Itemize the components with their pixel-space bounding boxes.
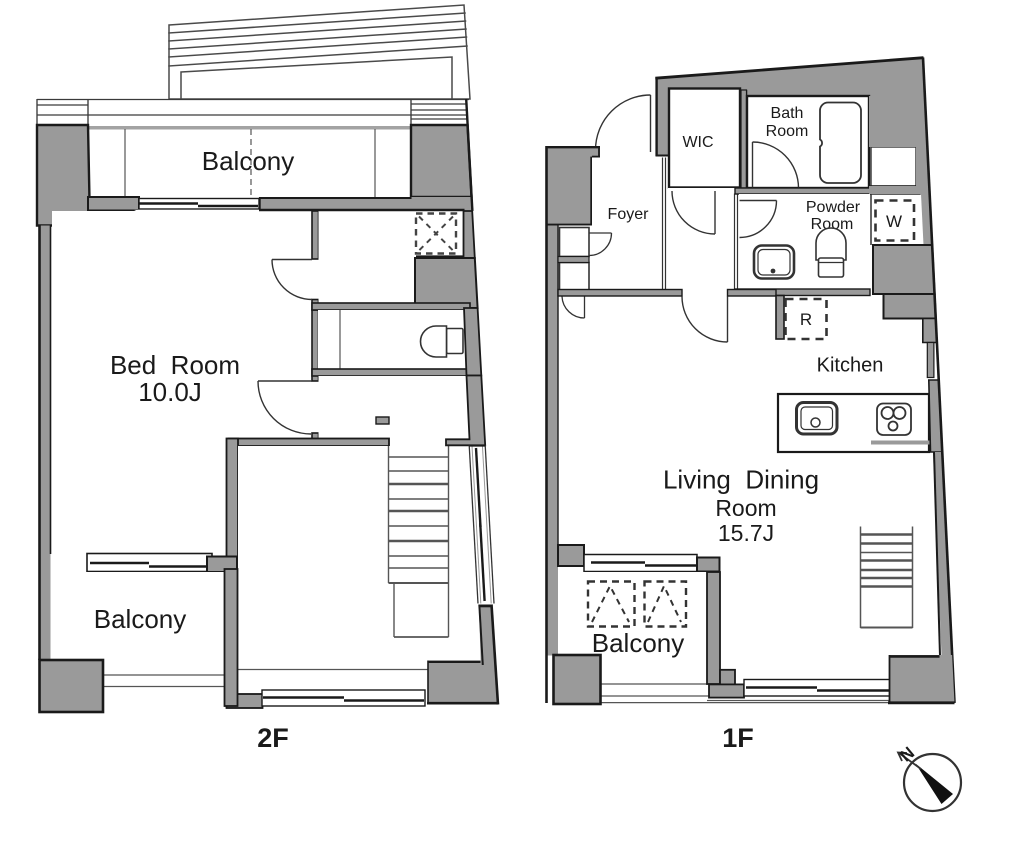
svg-text:Powder: Powder	[806, 199, 861, 216]
svg-text:Balcony: Balcony	[592, 628, 685, 658]
svg-text:Kitchen: Kitchen	[817, 355, 884, 377]
svg-text:Living Dining: Living Dining	[663, 465, 819, 495]
svg-text:10.0J: 10.0J	[138, 377, 202, 407]
svg-text:1F: 1F	[722, 723, 754, 753]
svg-text:Room: Room	[715, 495, 776, 521]
svg-text:Bed Room: Bed Room	[110, 350, 240, 380]
svg-text:W: W	[886, 212, 902, 231]
svg-text:2F: 2F	[257, 723, 289, 753]
svg-text:R: R	[800, 310, 812, 329]
svg-text:WIC: WIC	[682, 134, 713, 151]
svg-text:Room: Room	[766, 123, 809, 140]
svg-text:15.7J: 15.7J	[718, 520, 774, 546]
svg-text:Balcony: Balcony	[202, 146, 295, 176]
svg-text:Foyer: Foyer	[608, 206, 650, 223]
svg-text:Bath: Bath	[771, 105, 804, 122]
svg-text:Balcony: Balcony	[94, 604, 187, 634]
